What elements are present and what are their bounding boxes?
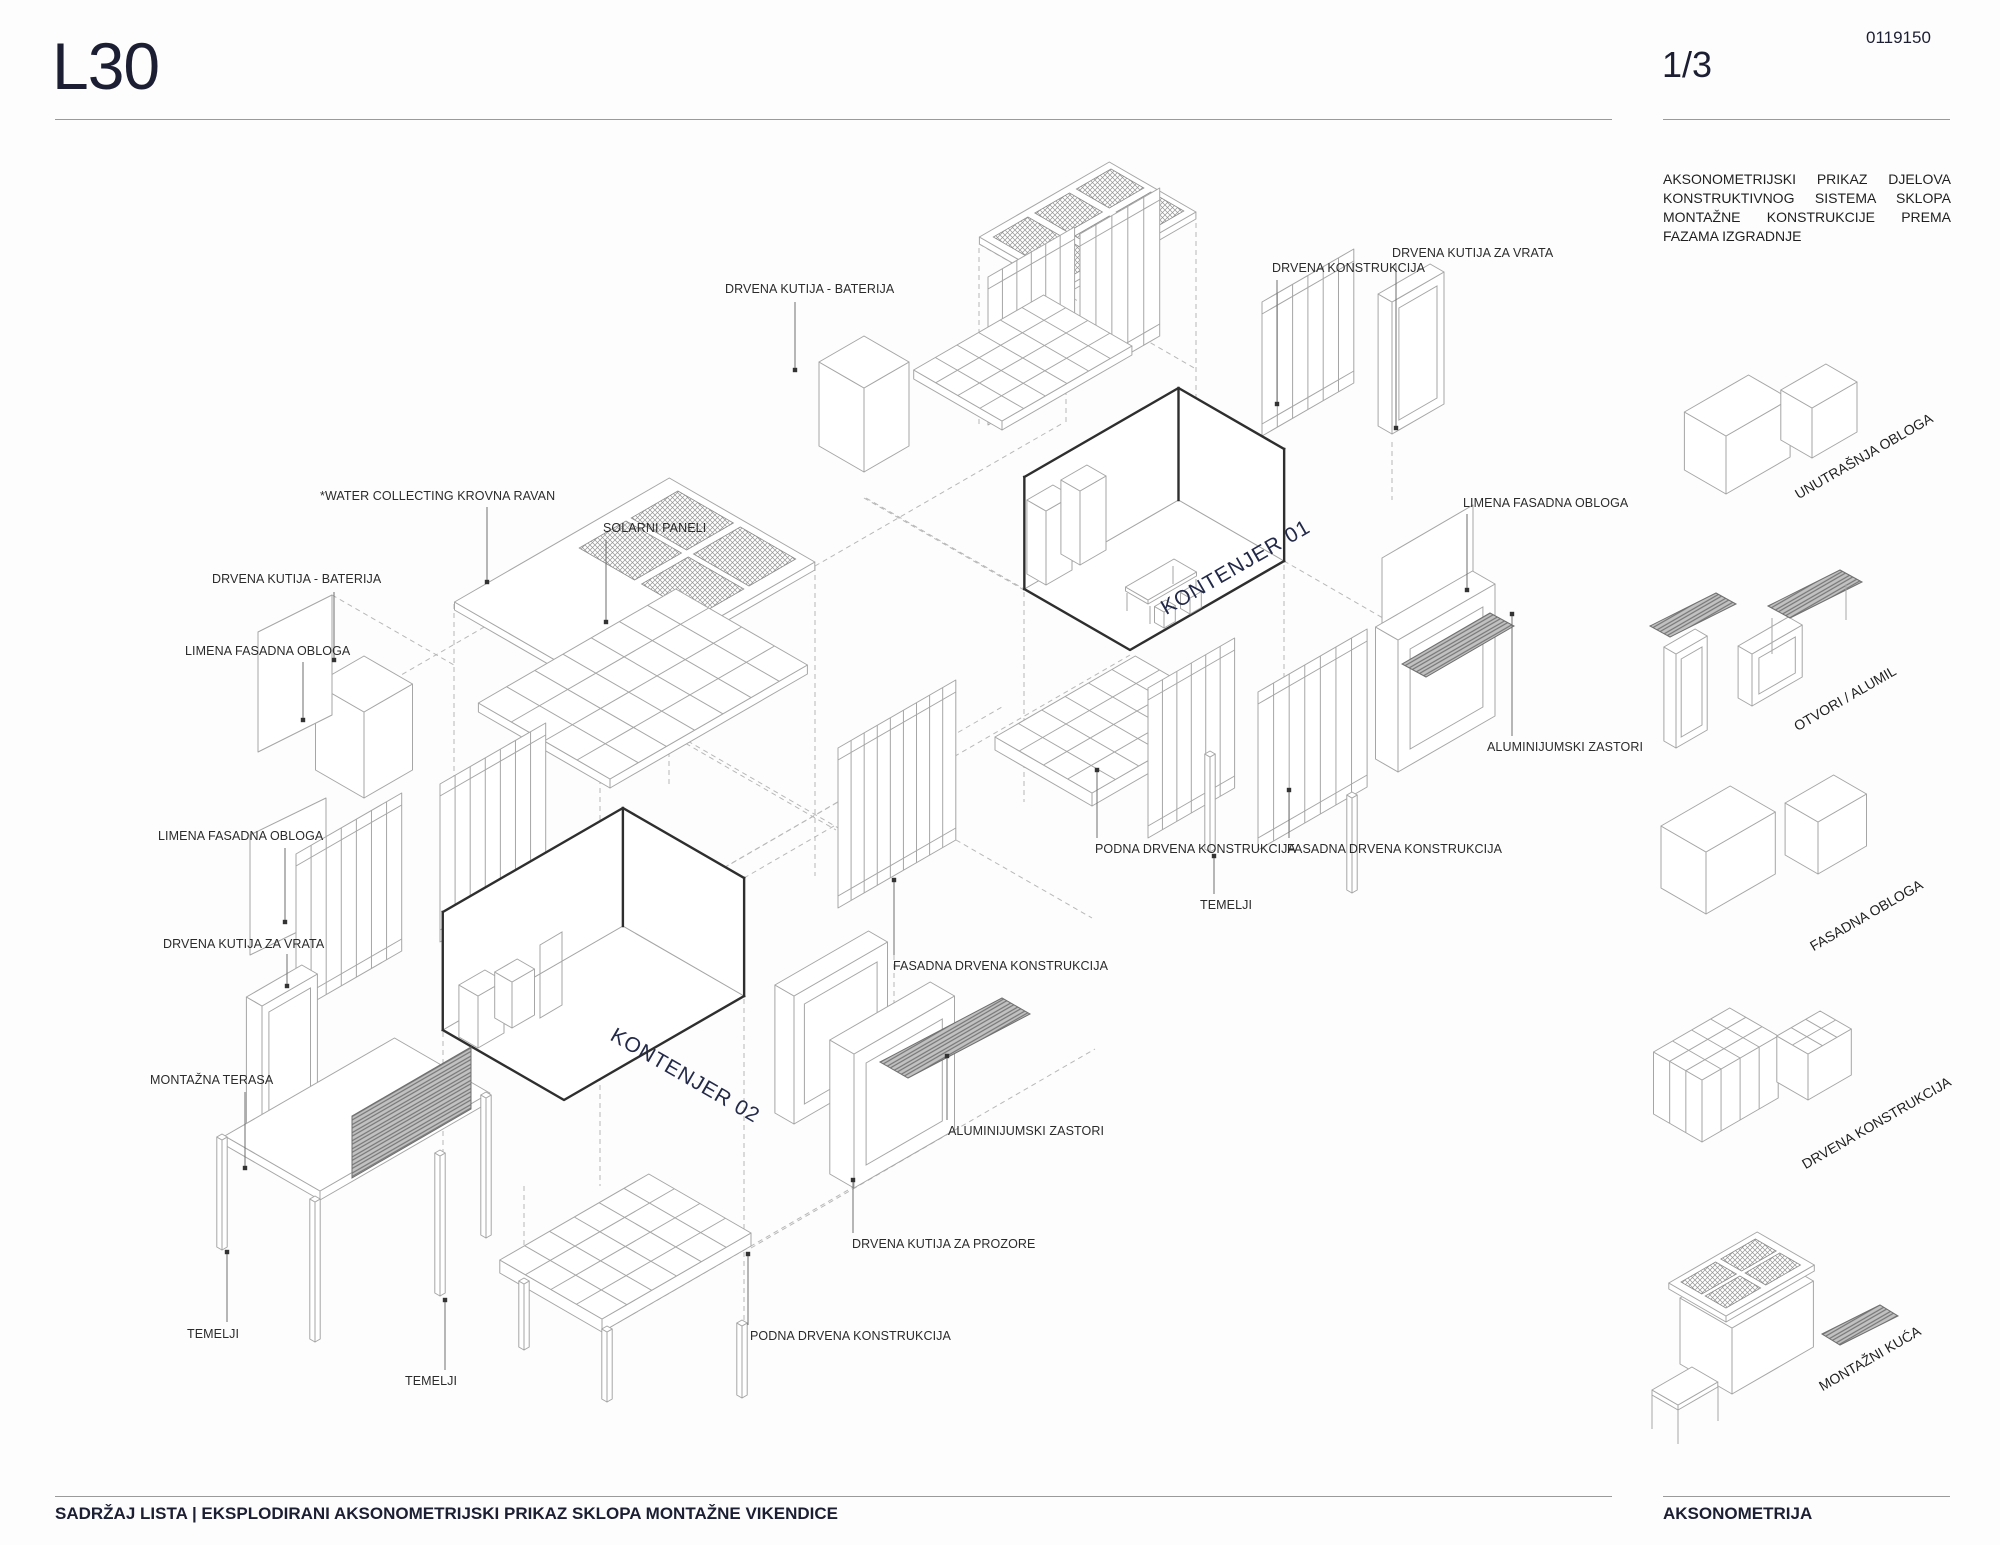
page-number: 1/3 xyxy=(1662,44,1712,86)
doc-number: 0119150 xyxy=(1866,28,1931,48)
part-label-drvena-kutija-za-vrata-top: DRVENA KUTIJA ZA VRATA xyxy=(1392,246,1553,260)
part-label-limena-fasadna-obloga-left-lower: LIMENA FASADNA OBLOGA xyxy=(158,829,323,843)
part-label-fasadna-drvena-konstrukcija-right: FASADNA DRVENA KONSTRUKCIJA xyxy=(1287,842,1502,856)
footer-view-name: AKSONOMETRIJA xyxy=(1663,1504,1812,1524)
header-rule-right xyxy=(1663,119,1950,120)
legend-sketches xyxy=(1650,364,1898,1444)
part-label-temelji-right: TEMELJI xyxy=(1200,898,1252,912)
header-rule-left xyxy=(55,119,1612,120)
sheet-code: L30 xyxy=(52,28,159,104)
part-label-podna-drvena-konstrukcija-right: PODNA DRVENA KONSTRUKCIJA xyxy=(1095,842,1296,856)
part-label-fasadna-drvena-konstrukcija-center: FASADNA DRVENA KONSTRUKCIJA xyxy=(893,959,1108,973)
part-label-drvena-konstrukcija-top: DRVENA KONSTRUKCIJA xyxy=(1272,261,1425,275)
component-linework xyxy=(217,162,1514,1402)
part-label-aluminijumski-zastori-center: ALUMINIJUMSKI ZASTORI xyxy=(948,1124,1104,1138)
part-label-drvena-kutija-baterija-left: DRVENA KUTIJA - BATERIJA xyxy=(212,572,381,586)
footer-rule-right xyxy=(1663,1496,1950,1497)
part-label-drvena-kutija-baterija-top: DRVENA KUTIJA - BATERIJA xyxy=(725,282,894,296)
part-label-aluminijumski-zastori-right: ALUMINIJUMSKI ZASTORI xyxy=(1487,740,1643,754)
drawing-sheet: { "header": { "sheet_code": "L30", "doc_… xyxy=(0,0,2000,1545)
part-label-limena-fasadna-obloga-left-upper: LIMENA FASADNA OBLOGA xyxy=(185,644,350,658)
part-label-temelji-far-left: TEMELJI xyxy=(187,1327,239,1341)
part-label-temelji-mid: TEMELJI xyxy=(405,1374,457,1388)
part-label-solarni-paneli: SOLARNI PANELI xyxy=(603,521,706,535)
part-label-drvena-kutija-za-vrata-left: DRVENA KUTIJA ZA VRATA xyxy=(163,937,324,951)
description-paragraph: AKSONOMETRIJSKI PRIKAZ DJELOVA KONSTRUKT… xyxy=(1663,170,1951,246)
footer-title: SADRŽAJ LISTA | EKSPLODIRANI AKSONOMETRI… xyxy=(55,1504,838,1524)
part-label-limena-fasadna-obloga-right: LIMENA FASADNA OBLOGA xyxy=(1463,496,1628,510)
part-label-drvena-kutija-za-prozore: DRVENA KUTIJA ZA PROZORE xyxy=(852,1237,1035,1251)
footer-rule-left xyxy=(55,1496,1612,1497)
part-label-montazna-terasa: MONTAŽNA TERASA xyxy=(150,1073,273,1087)
part-label-podna-drvena-konstrukcija-bottom: PODNA DRVENA KONSTRUKCIJA xyxy=(750,1329,951,1343)
part-label-water-collecting-krovna-ravan: *WATER COLLECTING KROVNA RAVAN xyxy=(320,489,555,503)
